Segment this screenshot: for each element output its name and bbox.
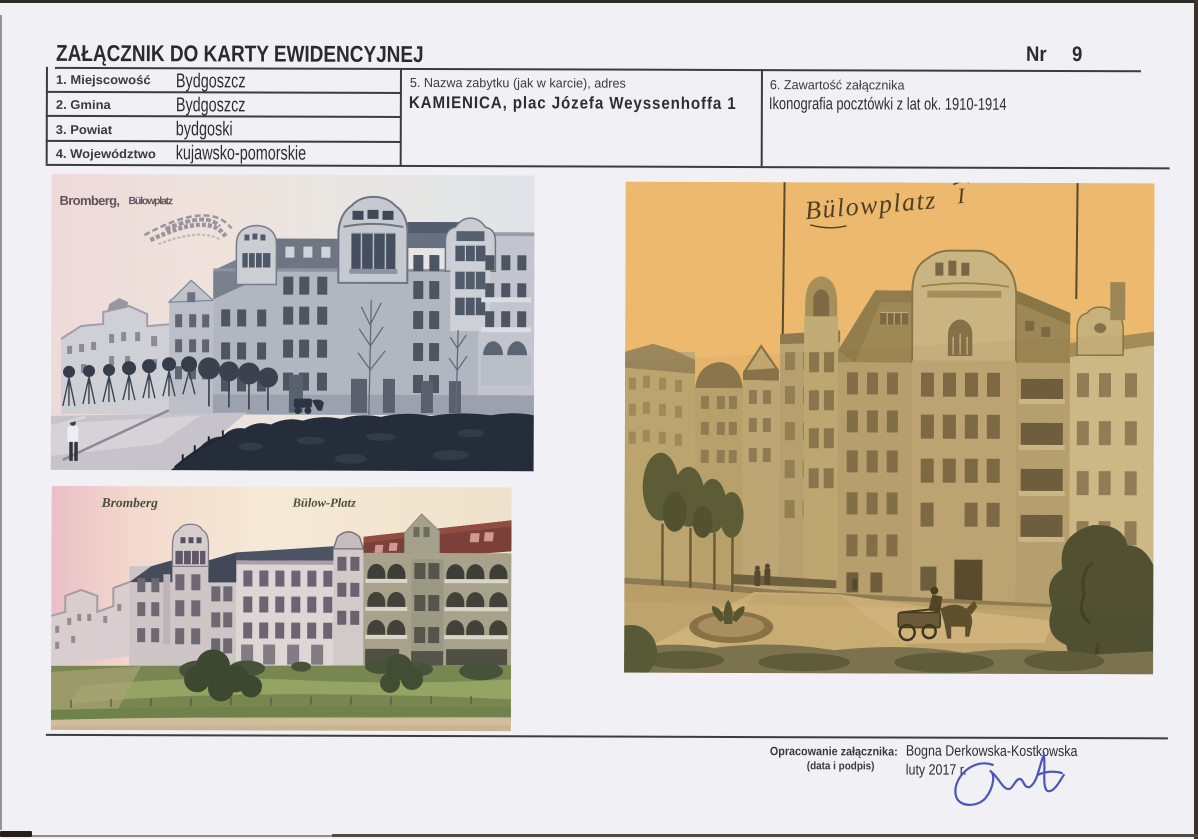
- svg-text:Bromberg: Bromberg: [101, 495, 159, 510]
- svg-text:Bromberg,: Bromberg,: [60, 193, 121, 208]
- svg-text:Bülow-Platz: Bülow-Platz: [292, 496, 356, 510]
- svg-text:Bülowplatz: Bülowplatz: [129, 195, 174, 207]
